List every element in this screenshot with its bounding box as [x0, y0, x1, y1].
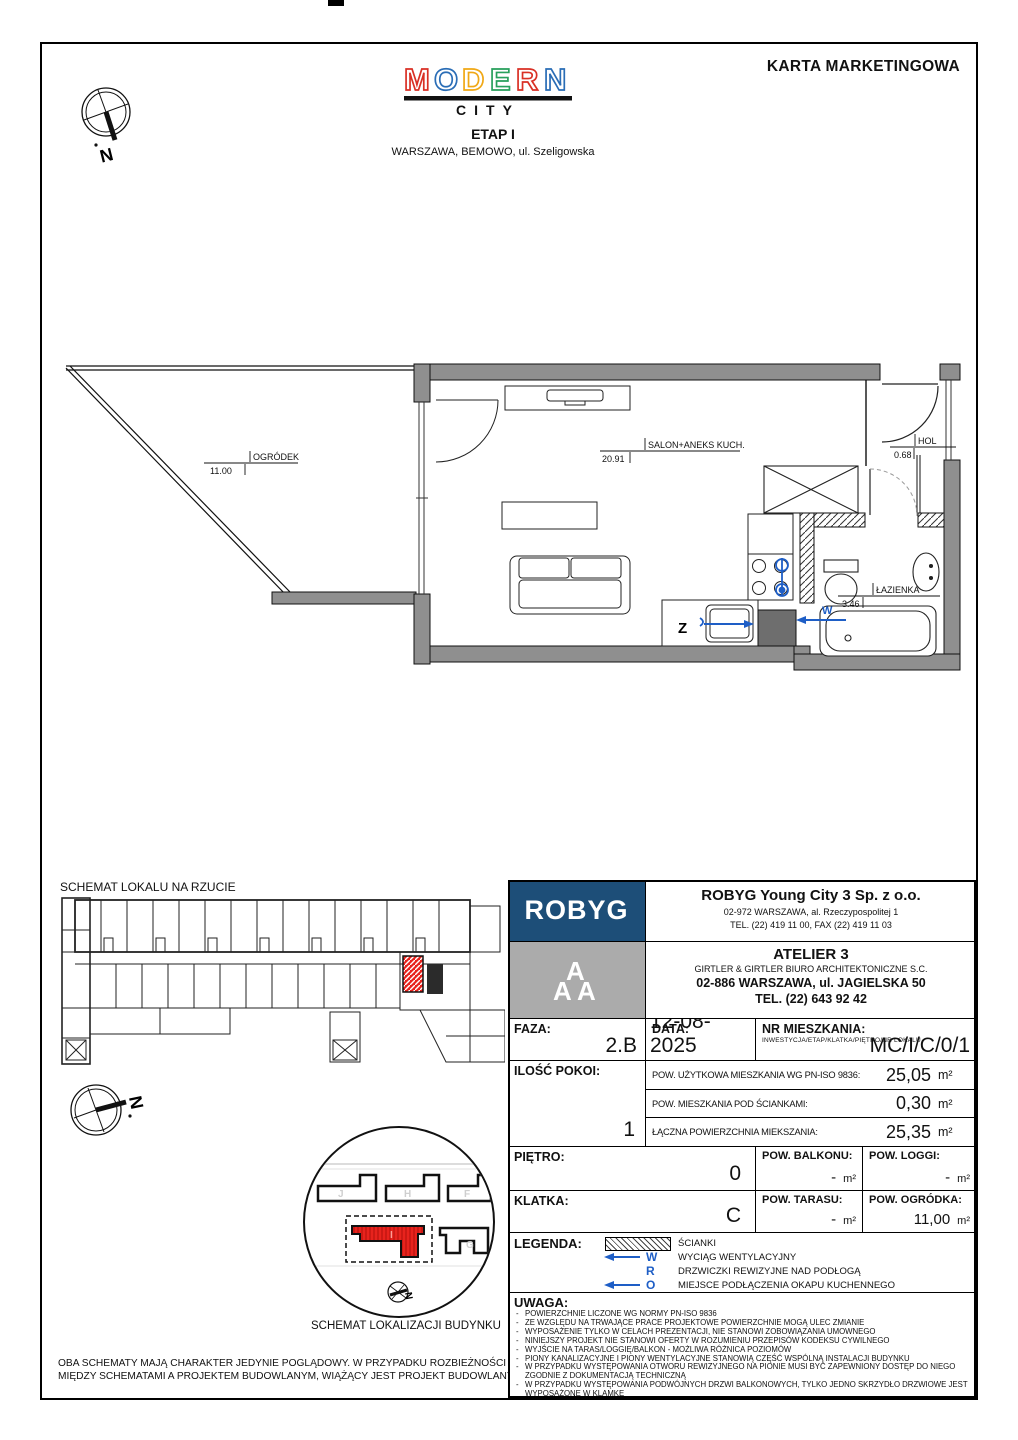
- legend-item-text: ŚCIANKI: [678, 1238, 716, 1249]
- legend-label: LEGENDA:: [514, 1236, 582, 1251]
- cell-faza: FAZA: 2.B: [508, 1018, 645, 1060]
- faza-value: 2.B: [605, 1034, 637, 1058]
- top-unit-dividers: [101, 900, 439, 952]
- developer-phone: TEL. (22) 419 11 00, FAX (22) 419 11 03: [646, 920, 976, 930]
- building-floor-schematic: [55, 893, 505, 1078]
- legend-letter-w: W: [646, 1250, 657, 1264]
- legend-letter-r: R: [646, 1264, 655, 1278]
- compass-n-label: N: [98, 144, 115, 166]
- area-unit: m²: [931, 1068, 970, 1082]
- pokoje-value: 1: [623, 1118, 635, 1142]
- garden-wall: [272, 592, 416, 604]
- klatka-label: KLATKA:: [514, 1194, 569, 1208]
- legend-item-text: WYCIĄG WENTYLACYJNY: [678, 1252, 796, 1263]
- walls-hatch-icon: [605, 1237, 671, 1251]
- compass-north-icon: N: [76, 82, 140, 166]
- legend-item-text: DRZWICZKI REWIZYJNE NAD PODŁOGĄ: [678, 1266, 861, 1277]
- pietro-value: 0: [729, 1162, 741, 1186]
- location-schematic-title: SCHEMAT LOKALIZACJI BUDYNKU: [286, 1320, 526, 1332]
- uwaga-note: W PRZYPADKU WYSTĘPOWANIA OTWORU REWIZYJN…: [516, 1363, 970, 1381]
- atelier-aaa-icon: A A A: [542, 952, 612, 1008]
- architect-name: ATELIER 3: [646, 946, 976, 963]
- logo-letter: M: [404, 62, 430, 97]
- bottom-unit-dividers: [116, 964, 376, 1008]
- cell-klatka: KLATKA: C: [508, 1190, 755, 1232]
- logo-letter: R: [516, 62, 538, 97]
- ogrodek-value: 11,00: [914, 1211, 950, 1228]
- cell-pow-loggi: POW. LOGGI: -m²: [862, 1146, 976, 1190]
- svg-text:0.68: 0.68: [894, 450, 912, 460]
- architect-sub: GIRTLER & GIRTLER BIURO ARCHITEKTONICZNE…: [646, 964, 976, 974]
- garden-fence: [66, 366, 416, 596]
- klatka-value: C: [726, 1204, 741, 1228]
- toilet: [824, 560, 858, 604]
- utility-shaft: [758, 610, 796, 646]
- architect-address: 02-886 WARSZAWA, ul. JAGIELSKA 50: [646, 976, 976, 990]
- developer-cell: ROBYG Young City 3 Sp. z o.o. 02-972 WAR…: [645, 880, 976, 941]
- developer-address: 02-972 WARSZAWA, al. Rzeczypospolitej 1: [646, 907, 976, 917]
- cell-area-scianki: POW. MIESZKANIA POD ŚCIANKAMI: 0,30 m²: [645, 1089, 976, 1117]
- svg-text:20.91: 20.91: [602, 454, 625, 464]
- svg-text:ŁAZIENKA: ŁAZIENKA: [876, 585, 920, 595]
- nr-value: MC/I/C/0/1: [870, 1034, 970, 1058]
- pokoje-label: ILOŚĆ POKOI:: [514, 1064, 600, 1078]
- vent-arrow-icon: [604, 1252, 642, 1262]
- info-table: ROBYG ROBYG Young City 3 Sp. z o.o. 02-9…: [508, 880, 976, 1398]
- atelier-logo: A A A: [508, 941, 645, 1018]
- modern-city-logo: M O D E R N CITY: [396, 60, 592, 118]
- area-label: POW. MIESZKANIA POD ŚCIANKAMI:: [652, 1099, 869, 1109]
- cell-pow-balkonu: POW. BALKONU: -m²: [755, 1146, 862, 1190]
- loggia-label: POW. LOGGI:: [869, 1150, 940, 1162]
- building-label: G: [466, 1240, 474, 1251]
- logo-underline: [404, 96, 572, 101]
- taras-label: POW. TARASU:: [762, 1194, 842, 1206]
- room-label-salon: SALON+ANEKS KUCH. 20.91: [600, 438, 745, 464]
- compass-north-icon: N: [66, 1076, 162, 1146]
- balcony-door: [436, 400, 498, 462]
- uwaga-notes: UWAGA: POWIERZCHNIE LICZONE WG NORMY PN-…: [508, 1292, 976, 1398]
- logo-sub-label: CITY: [456, 102, 520, 118]
- svg-text:SALON+ANEKS KUCH.: SALON+ANEKS KUCH.: [648, 440, 745, 450]
- building-label: F: [464, 1189, 470, 1200]
- uwaga-note: W PRZYPADKU WYSTĘPOWANIA PODWÓJNYCH DRZW…: [516, 1381, 970, 1398]
- cell-ilosc-pokoi: ILOŚĆ POKOI: 1: [508, 1060, 645, 1146]
- legend-item-text: MIEJSCE PODŁĄCZENIA OKAPU KUCHENNEGO: [678, 1280, 895, 1291]
- sofa: [510, 556, 630, 614]
- hood-arrow-icon: [604, 1280, 642, 1290]
- doc-title: KARTA MARKETINGOWA: [767, 58, 960, 76]
- window-glazing: [416, 380, 951, 594]
- uwaga-label: UWAGA:: [514, 1295, 568, 1310]
- floor-schematic-title: SCHEMAT LOKALU NA RZUCIE: [60, 880, 236, 894]
- robyg-logo-text: ROBYG: [524, 895, 628, 926]
- logo-letter: O: [434, 62, 458, 97]
- logo-letter: E: [490, 62, 511, 97]
- developer-name: ROBYG Young City 3 Sp. z o.o.: [646, 887, 976, 904]
- area-value: 25,35: [869, 1122, 931, 1143]
- table: [502, 502, 597, 529]
- area-value: 25,05: [869, 1065, 931, 1086]
- legend-letter-o: O: [646, 1278, 655, 1292]
- staircase-core: [427, 964, 443, 994]
- legend: LEGENDA: ŚCIANKI W WYCIĄG WENTYLACYJNY R…: [508, 1232, 976, 1292]
- cell-pow-tarasu: POW. TARASU: -m²: [755, 1190, 862, 1232]
- entrance-door: [882, 384, 938, 442]
- compass-n-label: N: [125, 1094, 147, 1111]
- area-label: ŁĄCZNA POWIERZCHNIA MIEKSZANIA:: [652, 1127, 869, 1137]
- sink-z-label: Z: [678, 620, 687, 637]
- cell-area-uzytkowa: POW. UŻYTKOWA MIESZKANIA WG PN-ISO 9836:…: [645, 1060, 976, 1089]
- area-value: 0,30: [869, 1093, 931, 1114]
- room-label-ogrodek: OGRÓDEK 11.00: [204, 451, 299, 476]
- area-unit: m²: [931, 1125, 970, 1139]
- building-location-schematic: J H F I G N: [292, 1116, 506, 1330]
- vent-w-label: W: [822, 605, 833, 617]
- pietro-label: PIĘTRO:: [514, 1150, 565, 1164]
- area-unit: m²: [931, 1097, 970, 1111]
- wardrobe: [764, 466, 858, 513]
- architect-phone: TEL. (22) 643 92 42: [646, 992, 976, 1006]
- logo-letter: N: [544, 62, 566, 97]
- data-value: 12-08-2025: [650, 1018, 755, 1058]
- project-address: WARSZAWA, BEMOWO, ul. Szeligowska: [318, 146, 668, 158]
- svg-text:OGRÓDEK: OGRÓDEK: [253, 452, 299, 462]
- ogrodek-label: POW. OGRÓDKA:: [869, 1194, 962, 1206]
- cell-data: DATA: 12-08-2025: [645, 1018, 755, 1060]
- robyg-logo: ROBYG: [508, 880, 645, 941]
- building-label: H: [404, 1189, 411, 1200]
- balkon-label: POW. BALKONU:: [762, 1150, 852, 1162]
- svg-text:A: A: [577, 976, 596, 1006]
- area-label: POW. UŻYTKOWA MIESZKANIA WG PN-ISO 9836:: [652, 1070, 869, 1080]
- svg-text:3.46: 3.46: [842, 599, 860, 609]
- svg-text:HOL: HOL: [918, 436, 937, 446]
- cell-pow-ogrodka: POW. OGRÓDKA: 11,00m²: [862, 1190, 976, 1232]
- bathroom-door: [870, 469, 917, 516]
- cell-area-laczna: ŁĄCZNA POWIERZCHNIA MIEKSZANIA: 25,35 m²: [645, 1117, 976, 1146]
- floor-plan: Z: [40, 350, 976, 690]
- schematics-disclaimer: OBA SCHEMATY MAJĄ CHARAKTER JEDYNIE POGL…: [58, 1358, 532, 1384]
- bathtub: [820, 606, 936, 656]
- cell-pietro: PIĘTRO: 0: [508, 1146, 755, 1190]
- svg-text:A: A: [553, 976, 572, 1006]
- logo-letter: D: [462, 62, 484, 97]
- elevator-shaft-icon: [66, 1040, 86, 1060]
- svg-text:11.00: 11.00: [210, 466, 232, 476]
- elevator-shaft-icon: [333, 1040, 357, 1060]
- unit-bathroom-marks: [104, 938, 425, 952]
- cell-nr-mieszkania: NR MIESZKANIA: INWESTYCJA/ETAP/KLATKA/PI…: [755, 1018, 976, 1060]
- highlighted-unit: [403, 956, 423, 992]
- architect-cell: ATELIER 3 GIRTLER & GIRTLER BIURO ARCHIT…: [645, 941, 976, 1018]
- stage-label: ETAP I: [343, 126, 643, 142]
- nr-label: NR MIESZKANIA:: [762, 1022, 865, 1036]
- faza-label: FAZA:: [514, 1022, 551, 1036]
- marketing-card-page: KARTA MARKETINGOWA N M O D E R N CITY ET…: [0, 0, 1018, 1440]
- building-label: I: [390, 1230, 393, 1241]
- building-label: J: [338, 1189, 344, 1200]
- tv-cabinet: [505, 386, 630, 410]
- scan-artifact: [328, 0, 344, 6]
